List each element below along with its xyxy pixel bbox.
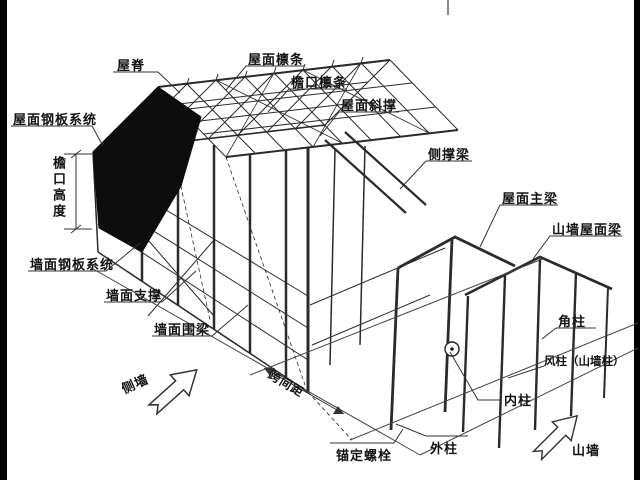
- label-side-brace-beam: 侧撑梁: [428, 144, 470, 163]
- side-wall-recede: [310, 146, 445, 365]
- label-gable-wall: 山墙: [572, 440, 600, 459]
- roof-wall-cladding-panel: [93, 87, 201, 252]
- label-roof-purlin: 屋面檩条: [248, 49, 304, 68]
- label-inner-column: 内柱: [504, 390, 532, 409]
- label-outer-column: 外柱: [430, 438, 458, 457]
- label-wall-panel-system: 墙面钢板系统: [30, 254, 114, 273]
- label-roof-panel-system: 屋面钢板系统: [13, 109, 97, 128]
- label-corner-column: 角柱: [558, 311, 586, 330]
- label-wall-brace: 墙面支撑: [106, 285, 162, 304]
- right-edge-bar: [634, 0, 640, 480]
- label-gable-roof-beam: 山墙屋面梁: [552, 219, 622, 238]
- diagram-canvas: 屋脊 屋面檩条 檐口檩条 屋面斜撑 侧撑梁 屋面主梁 山墙屋面梁 角柱 风柱（山…: [0, 0, 640, 480]
- column-marker-symbol: [445, 342, 459, 356]
- label-anchor-bolt: 锚定螺栓: [336, 445, 392, 464]
- label-ridge: 屋脊: [117, 55, 145, 74]
- left-edge-bar: [0, 0, 7, 480]
- portal-frame: [391, 237, 515, 430]
- label-roof-brace: 屋面斜撑: [341, 95, 397, 114]
- label-eave-height: 檐口高度: [48, 156, 67, 220]
- eave-height-dimension: [64, 150, 92, 233]
- wall-bracing-x: [148, 240, 214, 316]
- label-eave-purlin: 檐口檩条: [291, 72, 347, 91]
- label-wind-column: 风柱（山墙柱）: [544, 353, 625, 369]
- side-wall-arrow: [144, 360, 207, 420]
- label-wall-girt: 墙面围梁: [154, 319, 210, 338]
- label-roof-main-beam: 屋面主梁: [502, 188, 558, 207]
